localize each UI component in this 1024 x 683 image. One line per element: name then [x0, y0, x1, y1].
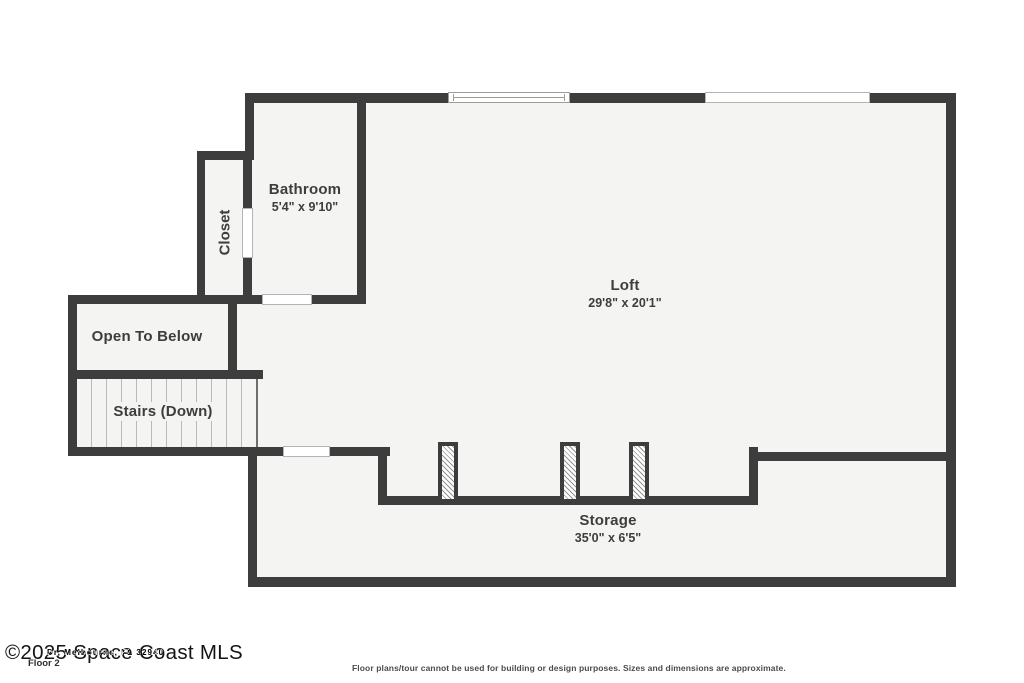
- closet-wall-top: [197, 151, 252, 160]
- outer-wall-right: [946, 93, 956, 587]
- loft-south-wall-right: [749, 452, 946, 461]
- floor-number-label: Floor 2: [28, 658, 60, 669]
- room-name: Closet: [217, 209, 234, 255]
- window-1: [448, 92, 570, 103]
- bathroom-wall-right: [357, 93, 366, 304]
- bathroom-door-opening: [262, 294, 312, 305]
- window-2: [705, 92, 870, 103]
- otb-stairs-divider-wall: [68, 370, 263, 379]
- disclaimer-text: Floor plans/tour cannot be used for buil…: [352, 663, 786, 673]
- stair-treads: [77, 379, 258, 447]
- window-frame-tick: [453, 94, 454, 101]
- outer-wall-left-upper: [245, 93, 254, 160]
- floorplan-canvas: Bathroom 5'4" x 9'10" Closet Loft 29'8" …: [0, 0, 1024, 683]
- stairs-loft-south-wall: [68, 447, 390, 456]
- loft-south-door-opening: [283, 446, 330, 457]
- closet-label: Closet: [205, 160, 245, 304]
- otb-wall-right: [228, 304, 237, 370]
- watermark-address-overlay: Dr, Melbourne, FL 32940: [47, 648, 164, 657]
- window-frame-tick: [564, 94, 565, 101]
- storage-post-1: [438, 442, 458, 503]
- outer-wall-bottom: [248, 577, 956, 587]
- closet-wall-left: [197, 151, 205, 304]
- storage-post-2: [560, 442, 580, 503]
- window-pane-line: [454, 97, 564, 98]
- outer-wall-left-lower: [248, 447, 257, 577]
- storage-post-3: [629, 442, 649, 503]
